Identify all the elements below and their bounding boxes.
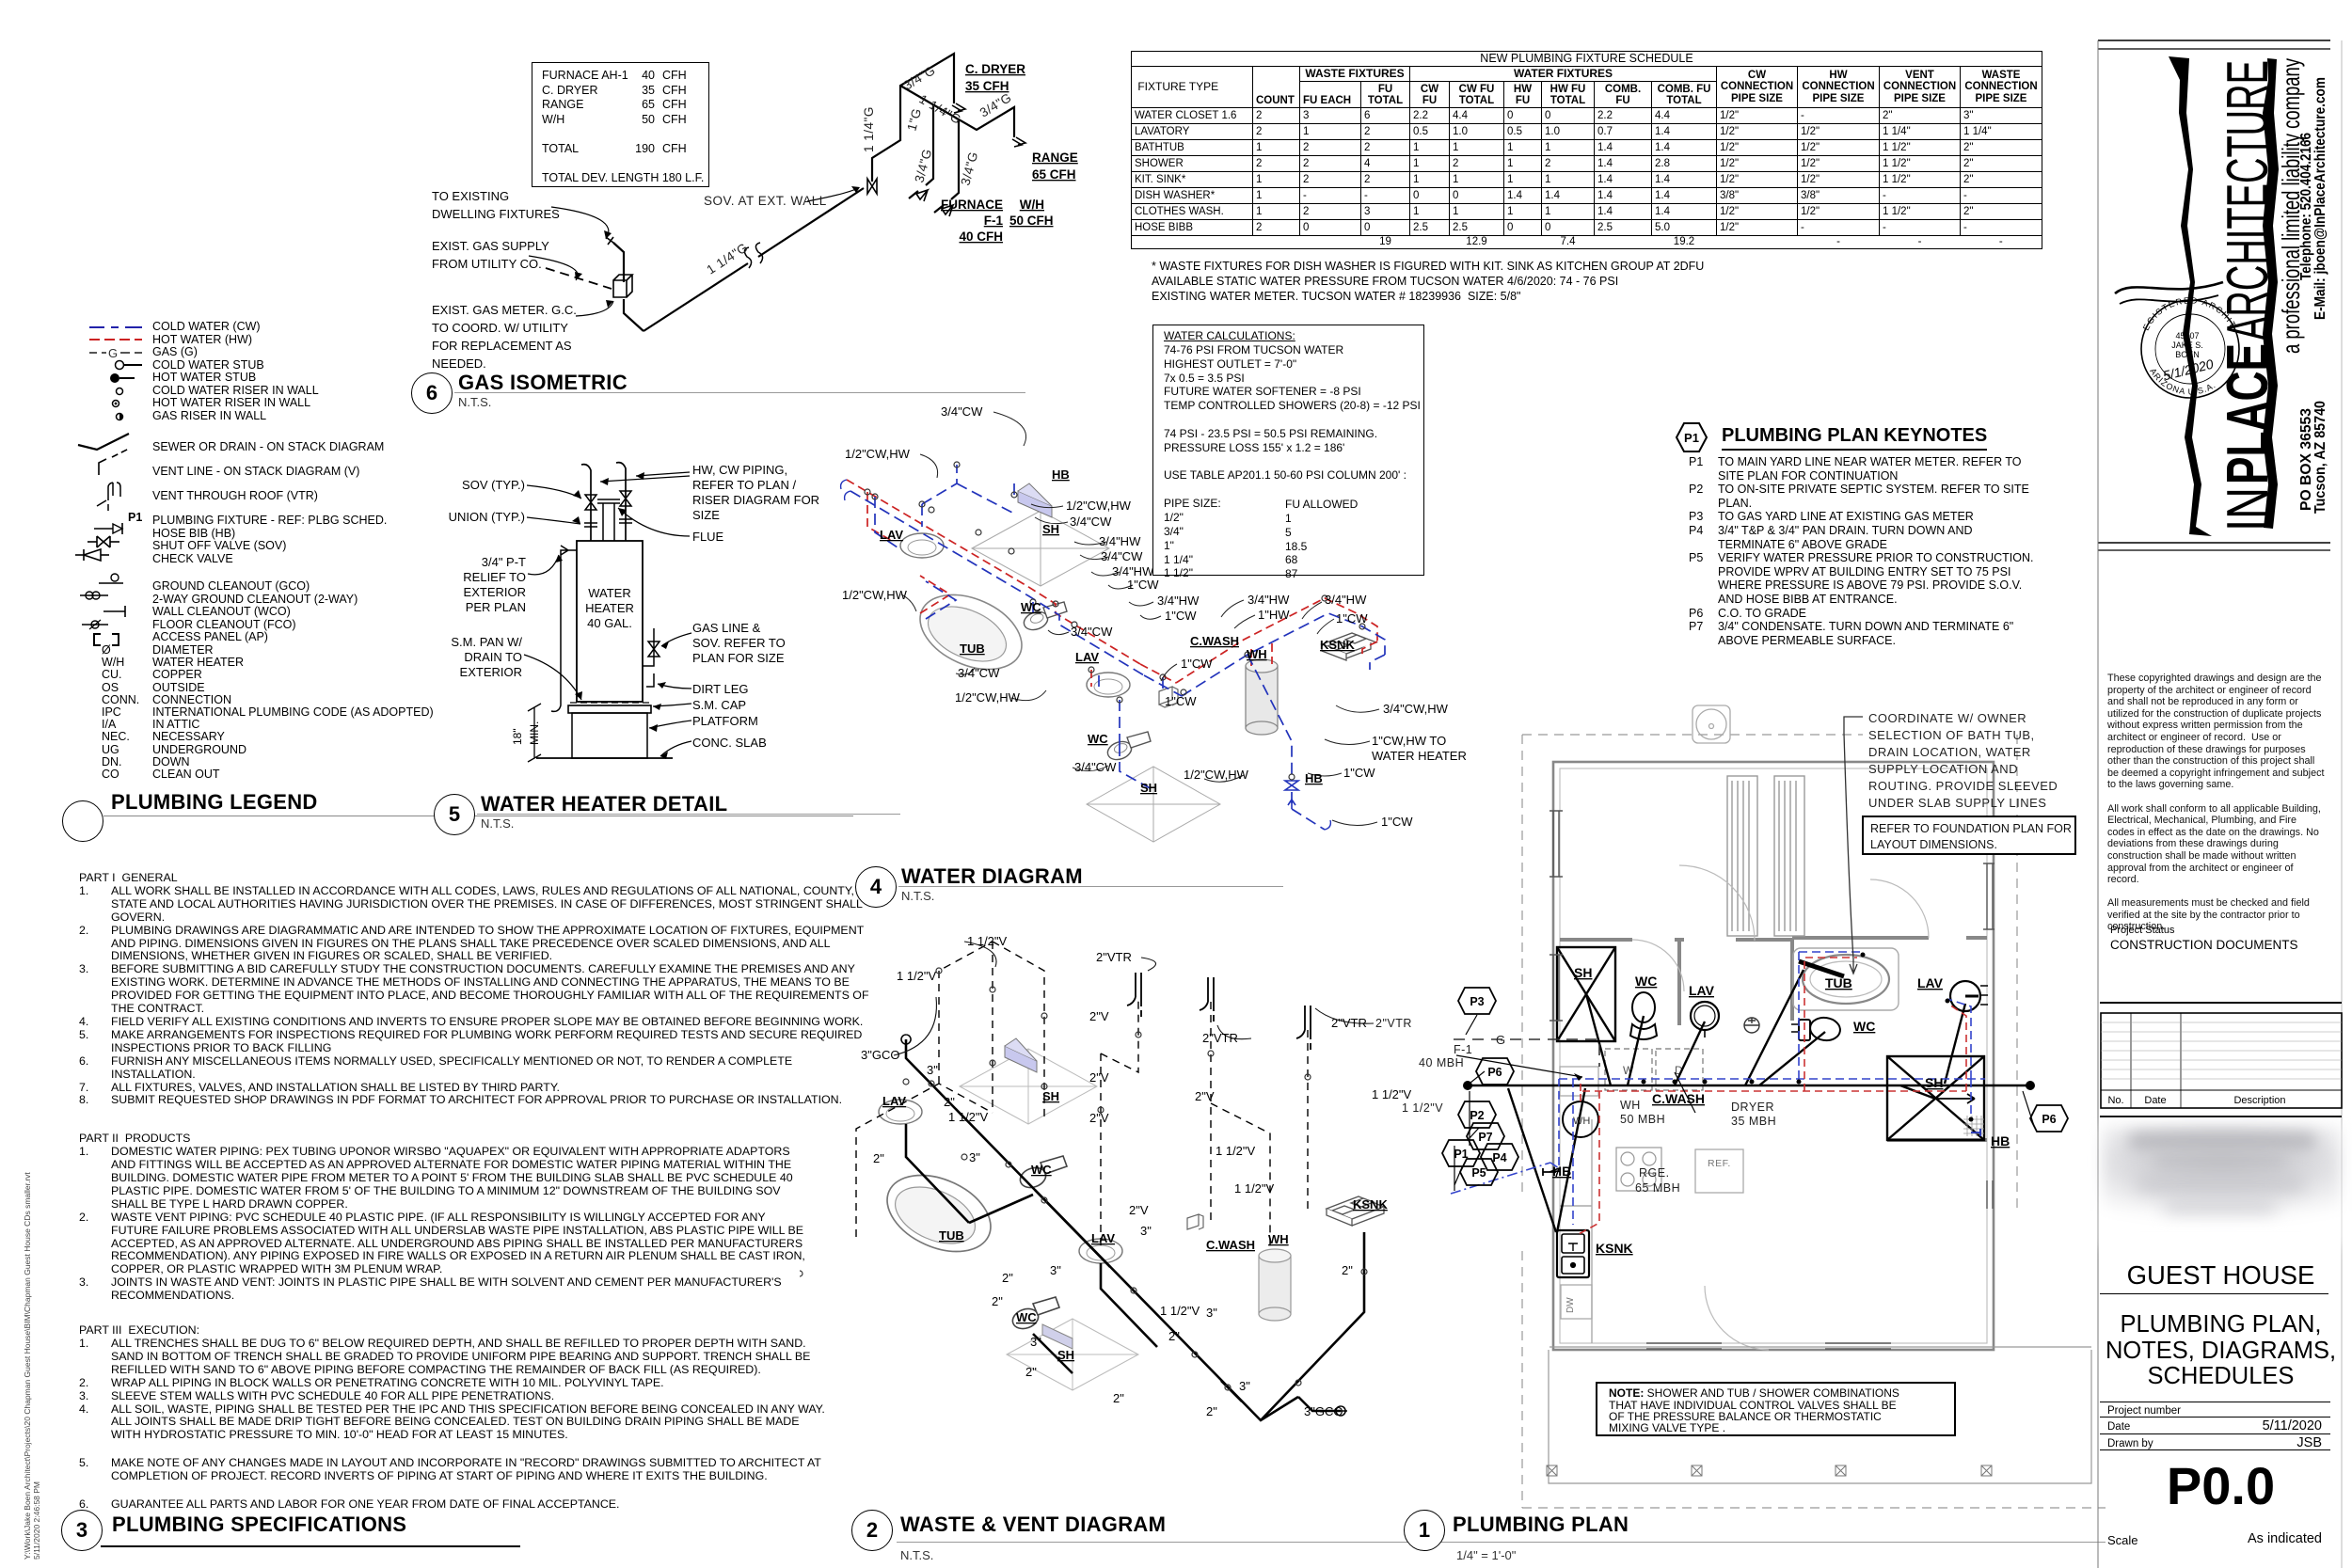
svg-text:1"CW: 1"CW xyxy=(1165,694,1197,708)
svg-text:EXIST. GAS SUPPLY: EXIST. GAS SUPPLY xyxy=(432,239,549,253)
svg-text:HEATER: HEATER xyxy=(585,601,634,615)
svg-text:3/4"CW: 3/4"CW xyxy=(941,404,983,419)
svg-text:WC: WC xyxy=(1635,974,1657,989)
svg-text:SELECTION OF BATH TUB,: SELECTION OF BATH TUB, xyxy=(1868,728,2035,742)
svg-text:3/4"G: 3/4"G xyxy=(977,90,1014,120)
svg-text:E-Mail: jboen@InPlaceArchitect: E-Mail: jboen@InPlaceArchitecture.com xyxy=(2312,77,2328,320)
svg-text:SH: SH xyxy=(1042,522,1059,536)
svg-text:1 1/4"G: 1 1/4"G xyxy=(862,106,876,152)
svg-text:EXTERIOR: EXTERIOR xyxy=(460,665,522,679)
svg-text:3/4"HW: 3/4"HW xyxy=(1099,534,1141,548)
svg-text:S.M. PAN W/: S.M. PAN W/ xyxy=(451,635,522,649)
svg-text:3": 3" xyxy=(1140,1224,1152,1238)
svg-text:3/4"G: 3/4"G xyxy=(958,150,980,187)
svg-text:GAS LINE &: GAS LINE & xyxy=(692,621,761,635)
svg-text:TO COORD. W/ UTILITY: TO COORD. W/ UTILITY xyxy=(432,321,568,335)
svg-text:LAV: LAV xyxy=(1091,1231,1115,1245)
svg-text:3/4"HW: 3/4"HW xyxy=(1157,594,1200,608)
svg-text:3/4"HW: 3/4"HW xyxy=(1325,593,1367,607)
svg-text:2": 2" xyxy=(1342,1263,1353,1277)
svg-text:G: G xyxy=(108,346,118,360)
svg-text:P7: P7 xyxy=(1478,1131,1492,1144)
svg-text:1 1/2"V: 1 1/2"V xyxy=(1234,1181,1275,1196)
svg-text:C.WASH: C.WASH xyxy=(1190,634,1239,648)
svg-text:P1: P1 xyxy=(1684,431,1699,445)
svg-text:3/4"CW: 3/4"CW xyxy=(1071,625,1113,639)
svg-text:WH: WH xyxy=(1268,1232,1289,1246)
svg-text:2": 2" xyxy=(1113,1391,1124,1405)
svg-text:LAV: LAV xyxy=(1917,975,1944,990)
svg-text:FOR REPLACEMENT AS: FOR REPLACEMENT AS xyxy=(432,339,572,353)
svg-text:P5: P5 xyxy=(1471,1166,1486,1180)
svg-text:WC: WC xyxy=(1031,1163,1052,1177)
svg-text:WH: WH xyxy=(1573,1116,1590,1127)
svg-text:Date: Date xyxy=(2144,1095,2166,1106)
svg-text:3/4"G: 3/4"G xyxy=(901,63,938,93)
svg-text:C.WASH: C.WASH xyxy=(1206,1238,1255,1252)
svg-text:SUPPLY LOCATION AND: SUPPLY LOCATION AND xyxy=(1868,762,2018,776)
svg-text:SOV. REFER TO: SOV. REFER TO xyxy=(692,636,786,650)
svg-text:40 GAL.: 40 GAL. xyxy=(587,616,632,630)
svg-text:1 1/2"V: 1 1/2"V xyxy=(1372,1087,1412,1101)
svg-text:2": 2" xyxy=(1168,1329,1180,1343)
svg-text:Tucson, AZ 85740: Tucson, AZ 85740 xyxy=(2312,401,2328,514)
svg-text:1"CW: 1"CW xyxy=(1336,611,1368,626)
svg-text:2": 2" xyxy=(873,1151,884,1165)
svg-text:W/H: W/H xyxy=(1020,198,1044,212)
svg-text:P6: P6 xyxy=(2042,1113,2056,1126)
svg-text:RGE.: RGE. xyxy=(1639,1166,1670,1180)
svg-text:3"GCO: 3"GCO xyxy=(1304,1404,1343,1418)
svg-text:P4: P4 xyxy=(1492,1151,1506,1164)
svg-text:NOTE: SHOWER AND TUB / SHOWER: NOTE: SHOWER AND TUB / SHOWER COMBINATIO… xyxy=(1609,1386,1899,1400)
svg-text:KSNK: KSNK xyxy=(1596,1241,1633,1256)
svg-text:1/2"CW,HW: 1/2"CW,HW xyxy=(955,690,1021,705)
svg-text:2"V: 2"V xyxy=(1129,1203,1149,1217)
svg-text:3/4"CW: 3/4"CW xyxy=(1074,760,1117,774)
svg-text:50 MBH: 50 MBH xyxy=(1620,1113,1665,1126)
svg-text:1/2"CW,HW: 1/2"CW,HW xyxy=(1184,768,1249,782)
svg-text:SH: SH xyxy=(1574,965,1592,980)
svg-text:WC: WC xyxy=(1016,1310,1037,1324)
svg-text:1"CW: 1"CW xyxy=(1381,815,1413,829)
svg-text:WATER: WATER xyxy=(588,586,631,600)
svg-text:WC: WC xyxy=(1853,1019,1875,1034)
svg-text:PER PLAN: PER PLAN xyxy=(466,600,526,614)
svg-text:2": 2" xyxy=(1206,1404,1217,1418)
svg-text:35 MBH: 35 MBH xyxy=(1731,1115,1776,1128)
svg-text:3/4"HW: 3/4"HW xyxy=(1248,593,1290,607)
svg-text:3": 3" xyxy=(1030,1335,1041,1349)
svg-text:WC: WC xyxy=(1088,732,1108,746)
svg-text:MIN.: MIN. xyxy=(528,721,541,745)
svg-text:HW, CW PIPING,: HW, CW PIPING, xyxy=(692,463,787,477)
svg-text:SH: SH xyxy=(1140,781,1157,795)
svg-text:35 CFH: 35 CFH xyxy=(965,79,1009,93)
svg-text:FROM UTILITY CO.: FROM UTILITY CO. xyxy=(432,257,542,271)
svg-text:3/4"CW: 3/4"CW xyxy=(1101,549,1143,563)
svg-text:2": 2" xyxy=(944,1095,955,1109)
svg-text:65 MBH: 65 MBH xyxy=(1635,1181,1680,1195)
svg-text:No.: No. xyxy=(2107,1095,2123,1106)
svg-text:1 1/4"G: 1 1/4"G xyxy=(704,240,750,277)
svg-text:3": 3" xyxy=(1239,1379,1250,1393)
svg-text:1"HW: 1"HW xyxy=(1258,608,1290,622)
svg-text:LAYOUT DIMENSIONS.: LAYOUT DIMENSIONS. xyxy=(1870,838,1997,851)
svg-text:2"V: 2"V xyxy=(1195,1089,1215,1103)
svg-text:WC: WC xyxy=(1021,600,1041,614)
svg-text:50 CFH: 50 CFH xyxy=(1009,214,1054,228)
svg-text:PLAN FOR SIZE: PLAN FOR SIZE xyxy=(692,651,785,665)
svg-text:UNDER SLAB SUPPLY LINES: UNDER SLAB SUPPLY LINES xyxy=(1868,796,2046,810)
svg-text:3": 3" xyxy=(927,1063,938,1077)
svg-text:3/4"G: 3/4"G xyxy=(912,148,934,184)
svg-text:Description: Description xyxy=(2233,1095,2285,1106)
svg-text:3": 3" xyxy=(969,1150,980,1164)
svg-text:1 1/2"V: 1 1/2"V xyxy=(897,969,937,983)
svg-text:TUB: TUB xyxy=(960,641,985,656)
svg-text:DRAIN LOCATION, WATER: DRAIN LOCATION, WATER xyxy=(1868,745,2031,759)
svg-text:LAV: LAV xyxy=(1075,650,1099,664)
svg-text:TUB: TUB xyxy=(1825,975,1852,990)
svg-text:RANGE: RANGE xyxy=(1032,150,1078,165)
svg-text:TUB: TUB xyxy=(939,1228,964,1243)
svg-text:COORDINATE W/ OWNER: COORDINATE W/ OWNER xyxy=(1868,711,2026,725)
svg-text:45707: 45707 xyxy=(2175,331,2199,341)
svg-text:SOV (TYP.): SOV (TYP.) xyxy=(462,478,525,492)
svg-text:FLUE: FLUE xyxy=(692,530,724,544)
svg-text:WH: WH xyxy=(1620,1099,1641,1112)
svg-text:S.M. CAP: S.M. CAP xyxy=(692,698,746,712)
svg-text:1 1/2"V: 1 1/2"V xyxy=(1160,1304,1200,1318)
svg-text:REFER TO FOUNDATION PLAN FOR: REFER TO FOUNDATION PLAN FOR xyxy=(1870,822,2072,835)
svg-text:3/4"CW: 3/4"CW xyxy=(958,666,1000,680)
svg-text:DW: DW xyxy=(1565,1297,1576,1313)
svg-text:RELIEF TO: RELIEF TO xyxy=(463,570,526,584)
svg-text:PLATFORM: PLATFORM xyxy=(692,714,758,728)
svg-text:1"CW: 1"CW xyxy=(1165,609,1197,623)
svg-text:LAV: LAV xyxy=(1689,983,1715,998)
svg-text:EXIST. GAS METER. G.C.: EXIST. GAS METER. G.C. xyxy=(432,303,577,317)
svg-text:FURNACE: FURNACE xyxy=(941,198,1003,212)
svg-text:2": 2" xyxy=(1002,1271,1013,1285)
svg-text:Y:\Work\Jake Boen Architect\Pr: Y:\Work\Jake Boen Architect\Projects\20 … xyxy=(23,1172,32,1560)
svg-text:G: G xyxy=(1496,1033,1505,1047)
svg-text:HB: HB xyxy=(1305,771,1323,785)
svg-text:SH: SH xyxy=(1925,1075,1943,1090)
svg-text:RISER DIAGRAM FOR: RISER DIAGRAM FOR xyxy=(692,493,819,507)
svg-text:65 CFH: 65 CFH xyxy=(1032,167,1076,182)
svg-text:KSNK: KSNK xyxy=(1353,1197,1388,1212)
svg-text:DIRT LEG: DIRT LEG xyxy=(692,682,748,696)
svg-text:1 1/2"V: 1 1/2"V xyxy=(948,1110,989,1124)
svg-text:2"VTR: 2"VTR xyxy=(1331,1016,1367,1030)
svg-text:JAKE S.: JAKE S. xyxy=(2171,341,2203,350)
svg-text:SH: SH xyxy=(1042,1089,1059,1103)
svg-text:1"CW: 1"CW xyxy=(1343,766,1375,780)
svg-text:WH: WH xyxy=(1247,647,1267,661)
svg-text:MIXING VALVE TYPE .: MIXING VALVE TYPE . xyxy=(1609,1421,1725,1434)
svg-text:3"GCO: 3"GCO xyxy=(861,1048,899,1062)
svg-text:SOV. AT EXT. WALL: SOV. AT EXT. WALL xyxy=(704,194,827,208)
svg-text:ROUTING. PROVIDE SLEEVED: ROUTING. PROVIDE SLEEVED xyxy=(1868,779,2058,793)
svg-text:HB: HB xyxy=(1552,1164,1571,1179)
svg-text:40 CFH: 40 CFH xyxy=(959,230,1003,244)
svg-text:TO EXISTING: TO EXISTING xyxy=(432,189,509,203)
svg-text:3/4"CW: 3/4"CW xyxy=(1070,515,1112,529)
svg-text:C.WASH: C.WASH xyxy=(1652,1091,1705,1106)
svg-text:HB: HB xyxy=(1991,1133,2010,1148)
svg-text:5/11/2020 2:46:58 PM: 5/11/2020 2:46:58 PM xyxy=(32,1481,41,1560)
svg-text:2"VTR: 2"VTR xyxy=(1202,1031,1238,1045)
svg-text:WATER HEATER: WATER HEATER xyxy=(1372,749,1467,763)
svg-text:P3: P3 xyxy=(1470,995,1484,1008)
svg-text:KSNK: KSNK xyxy=(1320,638,1355,652)
svg-text:1 1/4"G: 1 1/4"G xyxy=(917,92,964,127)
svg-text:REFER TO PLAN /: REFER TO PLAN / xyxy=(692,478,796,492)
svg-text:P2: P2 xyxy=(1470,1109,1484,1122)
svg-text:2": 2" xyxy=(1025,1365,1037,1379)
svg-text:2"VTR: 2"VTR xyxy=(1096,950,1132,964)
svg-text:2"V: 2"V xyxy=(1089,1070,1109,1085)
svg-text:SH: SH xyxy=(1057,1348,1074,1362)
svg-text:2"V: 2"V xyxy=(1089,1111,1109,1125)
svg-text:CONC. SLAB: CONC. SLAB xyxy=(692,736,767,750)
svg-text:1"CW: 1"CW xyxy=(1181,657,1213,671)
svg-text:1"G: 1"G xyxy=(904,106,924,132)
svg-text:REF.: REF. xyxy=(1708,1158,1731,1169)
svg-text:C. DRYER: C. DRYER xyxy=(965,62,1025,76)
svg-text:3/4" P-T: 3/4" P-T xyxy=(482,555,526,569)
svg-text:18": 18" xyxy=(511,728,524,745)
svg-text:3": 3" xyxy=(1050,1263,1061,1277)
svg-text:UNION (TYP.): UNION (TYP.) xyxy=(449,510,525,524)
svg-text:1"CW: 1"CW xyxy=(1127,578,1159,592)
svg-text:NEEDED.: NEEDED. xyxy=(432,356,486,371)
svg-text:2"V: 2"V xyxy=(1089,1009,1109,1023)
svg-text:1 1/2"V: 1 1/2"V xyxy=(967,934,1008,948)
svg-text:DWELLING FIXTURES: DWELLING FIXTURES xyxy=(432,207,560,221)
svg-text:DRYER: DRYER xyxy=(1731,1101,1774,1114)
svg-text:1"CW,HW TO: 1"CW,HW TO xyxy=(1372,734,1446,748)
svg-text:1 1/2"V: 1 1/2"V xyxy=(1216,1144,1256,1158)
svg-text:3/4"HW: 3/4"HW xyxy=(1112,564,1154,578)
svg-text:LAV: LAV xyxy=(882,1094,906,1108)
svg-text:P6: P6 xyxy=(1487,1066,1502,1079)
svg-text:DRAIN TO: DRAIN TO xyxy=(464,650,522,664)
svg-text:3": 3" xyxy=(1206,1306,1217,1320)
svg-text:2": 2" xyxy=(992,1294,1003,1308)
svg-text:BOEN: BOEN xyxy=(2175,350,2200,359)
svg-text:EXTERIOR: EXTERIOR xyxy=(464,585,526,599)
svg-text:3/4"CW,HW: 3/4"CW,HW xyxy=(1383,702,1449,716)
svg-text:HB: HB xyxy=(1052,467,1070,482)
svg-text:F-1: F-1 xyxy=(984,214,1004,228)
svg-text:1/2"CW,HW: 1/2"CW,HW xyxy=(1066,499,1132,513)
svg-text:SIZE: SIZE xyxy=(692,508,720,522)
